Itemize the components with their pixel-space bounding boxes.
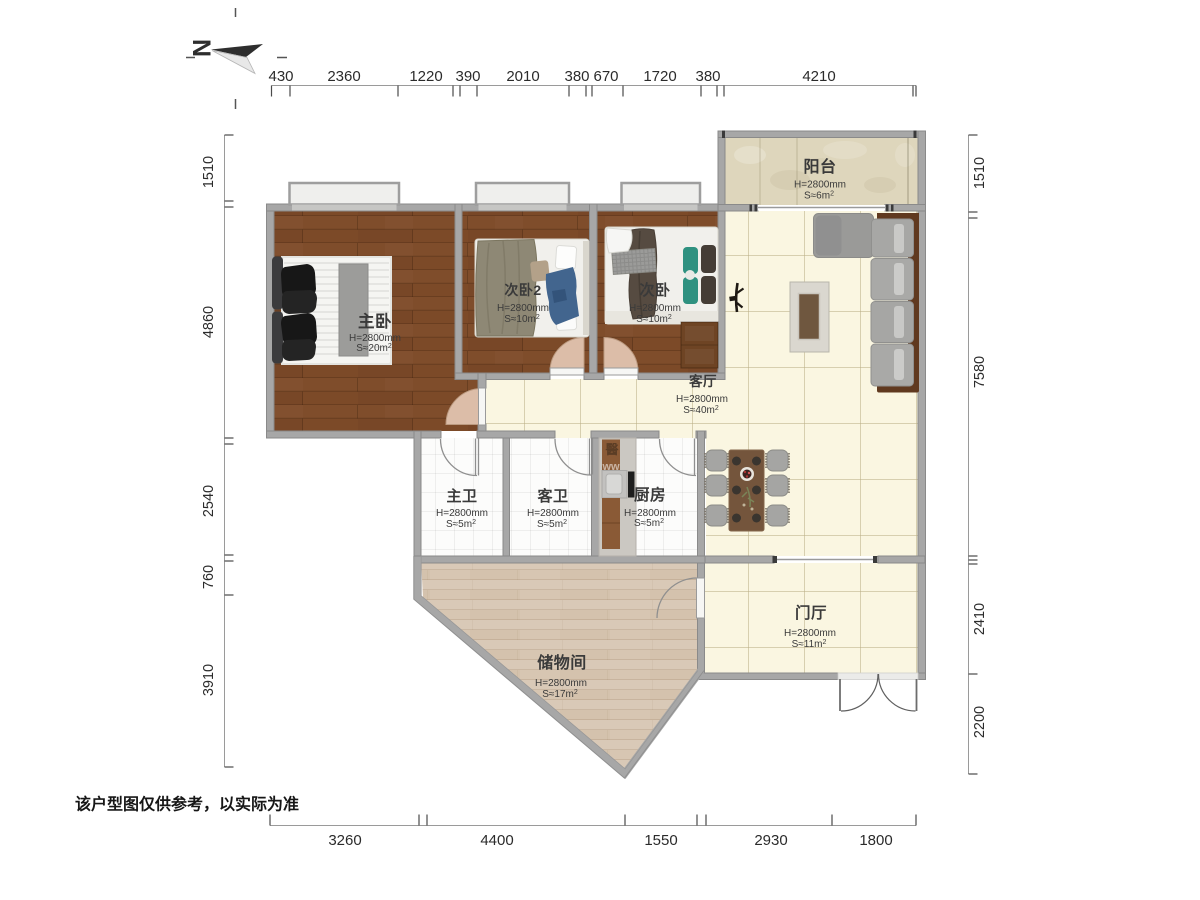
svg-text:2360: 2360 <box>327 68 360 85</box>
svg-text:380: 380 <box>564 68 589 85</box>
svg-text:1220: 1220 <box>409 68 442 85</box>
svg-text:S≈20m2: S≈20m2 <box>356 343 392 354</box>
svg-text:次卧2: 次卧2 <box>504 282 541 298</box>
svg-text:4400: 4400 <box>480 832 513 849</box>
svg-text:S≈11m2: S≈11m2 <box>792 639 827 650</box>
svg-text:2540: 2540 <box>201 485 217 517</box>
svg-text:S≈6m2: S≈6m2 <box>804 191 834 202</box>
svg-text:760: 760 <box>201 565 217 589</box>
svg-text:储物间: 储物间 <box>536 653 587 672</box>
svg-text:S≈40m2: S≈40m2 <box>683 405 719 416</box>
svg-text:430: 430 <box>268 68 293 85</box>
svg-text:阳台: 阳台 <box>803 157 836 176</box>
svg-text:2200: 2200 <box>972 706 988 738</box>
svg-text:该户型图仅供参考，以实际为准: 该户型图仅供参考，以实际为准 <box>75 795 299 814</box>
svg-text:H=2800mm: H=2800mm <box>629 303 681 314</box>
svg-text:醫: 醫 <box>605 442 618 457</box>
svg-text:1510: 1510 <box>201 156 217 188</box>
svg-text:1800: 1800 <box>859 832 892 849</box>
svg-text:H=2800mm: H=2800mm <box>535 678 587 689</box>
svg-text:主卧: 主卧 <box>358 311 392 331</box>
svg-text:1550: 1550 <box>644 832 677 849</box>
svg-text:3260: 3260 <box>328 832 361 849</box>
svg-text:S≈10m2: S≈10m2 <box>504 314 540 325</box>
svg-text:ww: ww <box>601 461 620 473</box>
svg-text:1510: 1510 <box>972 157 988 189</box>
svg-text:S≈17m2: S≈17m2 <box>542 689 578 700</box>
svg-text:4210: 4210 <box>802 68 835 85</box>
svg-text:4860: 4860 <box>201 306 217 338</box>
svg-text:次卧: 次卧 <box>639 281 670 299</box>
svg-text:1720: 1720 <box>643 68 676 85</box>
svg-text:主卫: 主卫 <box>446 487 477 505</box>
svg-text:N: N <box>187 39 215 57</box>
svg-text:客卫: 客卫 <box>536 487 568 505</box>
svg-text:H=2800mm: H=2800mm <box>784 628 836 639</box>
svg-text:厨房: 厨房 <box>634 485 666 504</box>
svg-text:2930: 2930 <box>754 832 787 849</box>
svg-text:H=2800mm: H=2800mm <box>676 394 728 405</box>
svg-text:7580: 7580 <box>972 356 988 388</box>
svg-text:H=2800mm: H=2800mm <box>436 508 488 519</box>
svg-text:S≈10m2: S≈10m2 <box>636 314 672 325</box>
svg-text:H=2800mm: H=2800mm <box>497 303 549 314</box>
svg-text:380: 380 <box>695 68 720 85</box>
svg-text:390: 390 <box>455 68 480 85</box>
svg-text:2010: 2010 <box>506 68 539 85</box>
svg-text:门厅: 门厅 <box>795 603 827 622</box>
svg-text:S≈5m2: S≈5m2 <box>537 519 567 530</box>
svg-text:670: 670 <box>593 68 618 85</box>
svg-text:客厅: 客厅 <box>688 373 717 389</box>
svg-text:H=2800mm: H=2800mm <box>527 508 579 519</box>
svg-text:3910: 3910 <box>201 664 217 696</box>
svg-text:H=2800mm: H=2800mm <box>794 180 846 191</box>
svg-text:2410: 2410 <box>972 603 988 635</box>
svg-text:S≈5m2: S≈5m2 <box>446 519 476 530</box>
svg-text:S≈5m2: S≈5m2 <box>634 518 664 529</box>
